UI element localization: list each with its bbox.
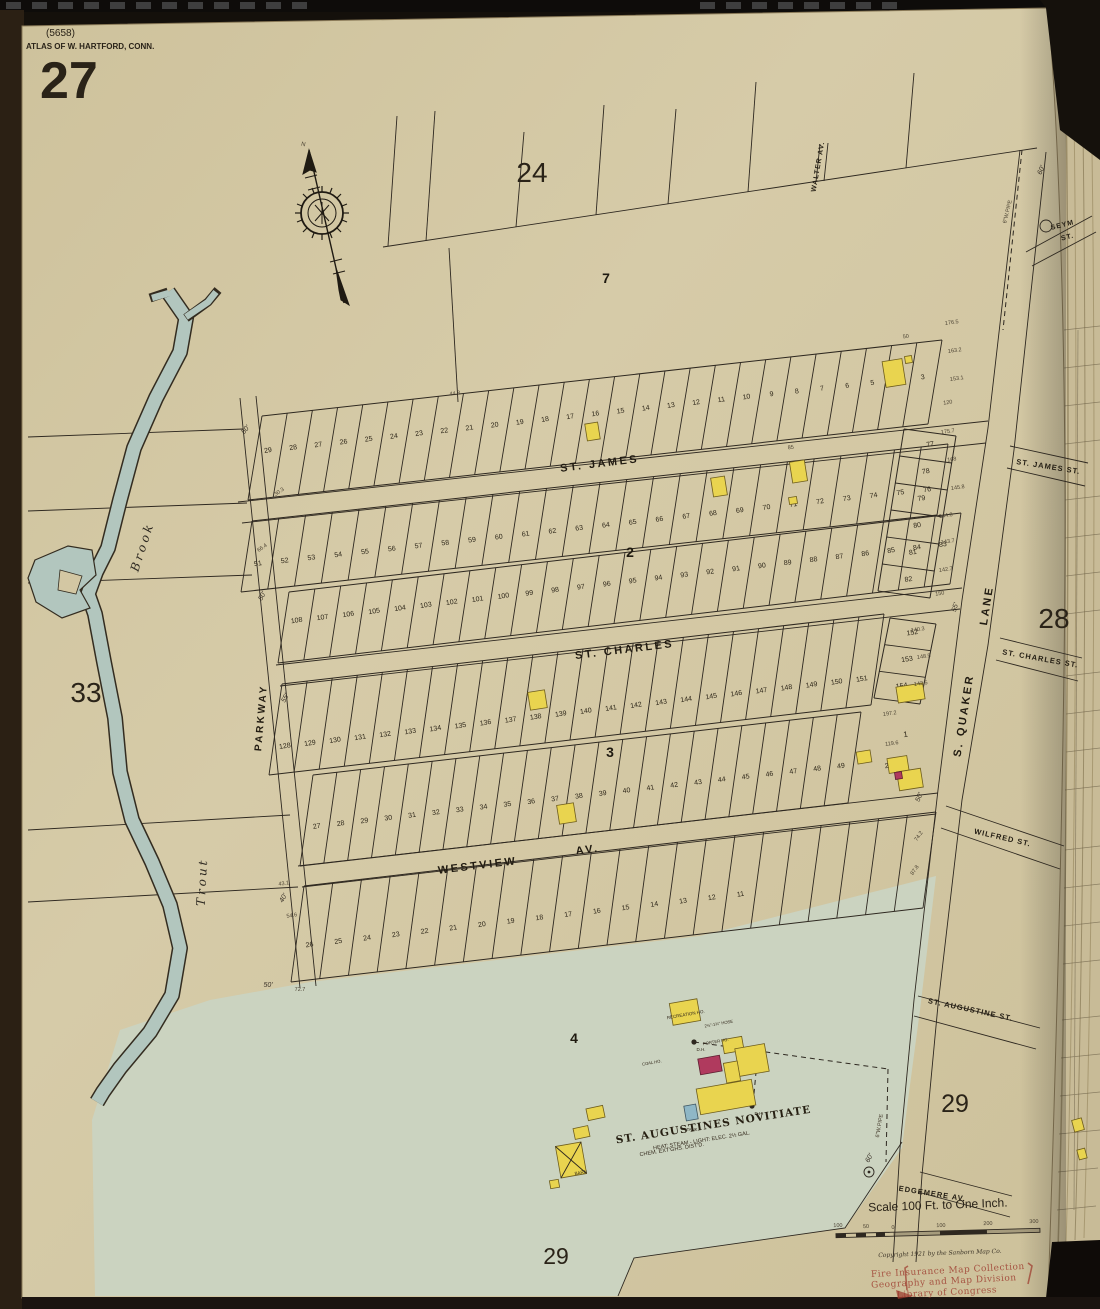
map-label: 7 — [602, 270, 610, 286]
lot-number: 25 — [334, 938, 343, 946]
frame-building — [789, 460, 807, 483]
building — [856, 750, 872, 764]
lot-number: 12 — [692, 399, 701, 407]
lot-number: 37 — [551, 795, 560, 803]
building — [528, 690, 548, 710]
lot-number: 39 — [598, 790, 607, 798]
lot-number: 16 — [591, 410, 600, 418]
lot-number: 92 — [706, 568, 715, 576]
lot-number: 79 — [917, 495, 926, 503]
building — [723, 1061, 740, 1083]
lot-number: 95 — [628, 577, 637, 585]
map-label: 150 — [935, 590, 945, 597]
lot-number: 96 — [602, 580, 611, 588]
lot-number: 77 — [926, 441, 935, 449]
lot-number: 64 — [602, 522, 611, 530]
lot-number: 68 — [709, 510, 718, 518]
lot-number: 31 — [408, 812, 417, 820]
lot-number: 20 — [478, 921, 487, 929]
lot-number: 24 — [363, 934, 372, 942]
lot-number: 55 — [361, 548, 370, 556]
map-label: 72.7 — [295, 987, 306, 993]
lot-number: 15 — [616, 407, 625, 415]
lot-number: 70 — [762, 504, 771, 512]
frame-building — [856, 750, 872, 764]
lot-number: 38 — [575, 793, 584, 801]
lot-number: 27 — [314, 441, 323, 449]
lot-number: 89 — [783, 559, 792, 567]
map-label: Trout — [194, 857, 211, 906]
frame-building — [789, 496, 798, 504]
building — [735, 1044, 769, 1077]
lot-number: 45 — [741, 773, 750, 781]
lot-number: 98 — [551, 586, 560, 594]
lot-number: 11 — [717, 396, 725, 404]
lot-number: 72 — [816, 498, 825, 506]
lot-number: 18 — [541, 416, 550, 424]
sanborn-map-sheet: 2928272625242322212019181716151413121110… — [0, 0, 1100, 1309]
lot-number: 14 — [641, 405, 650, 413]
lot-number: 24 — [390, 433, 399, 441]
map-label: 27 — [40, 52, 98, 110]
map-label: 0 — [891, 1225, 894, 1231]
lot-number: 20 — [490, 421, 499, 429]
lot-number: 63 — [575, 525, 584, 533]
building — [894, 771, 902, 779]
lot-number: 19 — [506, 918, 515, 926]
map-label: 50 — [863, 1224, 869, 1230]
lot-number: 32 — [432, 809, 441, 817]
map-label: 85 — [787, 445, 794, 452]
lot-number: 81 — [909, 549, 918, 557]
map-label: 24 — [516, 157, 547, 188]
lot-number: 41 — [646, 784, 655, 792]
lot-number: 69 — [735, 507, 744, 515]
frame-building — [723, 1061, 740, 1083]
map-label: 50' — [263, 982, 273, 989]
lot-number: 35 — [503, 801, 512, 809]
lot-number: 26 — [339, 438, 348, 446]
lot-number: 86 — [861, 550, 870, 558]
lot-number: 16 — [593, 908, 602, 916]
lot-number: 17 — [564, 911, 573, 919]
lot-number: 51 — [254, 560, 263, 568]
lot-number: 82 — [904, 576, 913, 584]
lot-number: 57 — [414, 542, 423, 550]
lot-number: 13 — [667, 402, 676, 410]
lot-number: 54 — [334, 551, 343, 559]
lot-number: 60 — [495, 533, 504, 541]
map-label: 100 — [833, 1223, 842, 1229]
lot-number: 88 — [809, 556, 818, 564]
lot-number: 15 — [621, 904, 630, 912]
lot-number: 13 — [679, 897, 688, 905]
map-label: 29 — [543, 1243, 569, 1269]
brick-building — [698, 1055, 722, 1075]
map-label: 4 — [570, 1030, 578, 1046]
lot-number: 97 — [577, 583, 586, 591]
frame-building — [528, 690, 548, 710]
building — [789, 460, 807, 483]
lot-number: 30 — [384, 814, 393, 822]
map-label: 300 — [1029, 1219, 1038, 1225]
lot-number: 27 — [312, 823, 321, 831]
map-label: (5658) — [46, 28, 75, 39]
lot-number: 10 — [742, 393, 751, 401]
frame-building — [549, 1179, 559, 1188]
building — [882, 359, 906, 388]
map-label: 3 — [606, 744, 614, 760]
lot-number: 23 — [415, 430, 424, 438]
lot-number: 93 — [680, 571, 689, 579]
map-label: 100 — [936, 1223, 945, 1229]
lot-number: 74 — [869, 492, 878, 500]
lot-number: 25 — [364, 436, 373, 444]
lot-number: 21 — [449, 924, 458, 932]
stone-building — [684, 1104, 698, 1121]
lot-number: 21 — [465, 424, 474, 432]
brick-building — [894, 771, 902, 779]
building — [789, 496, 798, 504]
lot-number: 61 — [521, 530, 530, 538]
lot-number: 87 — [835, 553, 844, 561]
lot-number: 28 — [289, 444, 298, 452]
frame-building — [585, 422, 600, 441]
lot-number: 49 — [837, 762, 846, 770]
lot-number: 53 — [307, 554, 316, 562]
building — [904, 355, 912, 363]
map-label: ATLAS OF W. HARTFORD, CONN. — [26, 42, 154, 51]
lot-number: 34 — [479, 803, 488, 811]
lot-number: 85 — [887, 547, 896, 555]
map-label: 120 — [943, 399, 953, 406]
lot-number: 44 — [718, 776, 727, 784]
frame-building — [557, 803, 577, 824]
lot-number: 33 — [455, 806, 464, 814]
lot-number: 90 — [758, 562, 767, 570]
book-spine-edge — [0, 10, 24, 1309]
frame-building — [735, 1044, 769, 1077]
lot-number: 14 — [650, 901, 659, 909]
map-label: 2 — [626, 544, 634, 560]
lot-number: 65 — [628, 519, 637, 527]
lot-number: 11 — [736, 891, 744, 899]
building — [549, 1179, 559, 1188]
map-label: 168 — [947, 456, 957, 463]
lot-number: 73 — [843, 495, 852, 503]
lot-number: 56 — [387, 545, 396, 553]
lot-number: 67 — [682, 513, 691, 521]
building — [585, 422, 600, 441]
map-label: D.H. — [697, 1047, 706, 1052]
map-label: 29 — [941, 1090, 969, 1118]
map-label: 50 — [902, 334, 909, 341]
lot-number: 36 — [527, 798, 536, 806]
lot-number: 59 — [468, 536, 477, 544]
lot-number: 17 — [566, 413, 575, 421]
lot-number: 26 — [305, 941, 314, 949]
lot-number: 19 — [516, 419, 525, 427]
map-label: 28 — [1038, 603, 1069, 634]
bottom-shadow-strip — [22, 1297, 1100, 1309]
building — [698, 1055, 722, 1075]
lot-number: 29 — [360, 817, 369, 825]
lot-number: 12 — [707, 894, 716, 902]
frame-building — [882, 359, 906, 388]
lot-number: 99 — [525, 590, 534, 598]
lot-number: 66 — [655, 516, 664, 524]
lot-number: 78 — [922, 468, 931, 476]
lot-number: 46 — [765, 771, 774, 779]
frame-building — [711, 476, 728, 497]
lot-number: 58 — [441, 539, 450, 547]
map-label: 200 — [983, 1221, 992, 1227]
lot-number: 91 — [732, 565, 741, 573]
lot-number: 29 — [264, 447, 273, 455]
lot-number: 42 — [670, 782, 679, 790]
lot-number: 40 — [622, 787, 631, 795]
building — [684, 1104, 698, 1121]
lot-number: 18 — [535, 914, 544, 922]
lot-number: 47 — [789, 768, 798, 776]
lot-number: 62 — [548, 528, 557, 536]
lot-number: 23 — [391, 931, 400, 939]
sanborn-atlas-page: 2928272625242322212019181716151413121110… — [0, 0, 1100, 1309]
frame-building — [904, 355, 912, 363]
lot-number: 80 — [913, 522, 922, 530]
lot-number: 22 — [440, 427, 449, 435]
lot-number: 22 — [420, 928, 429, 936]
lot-number: 28 — [336, 820, 345, 828]
map-label: 33 — [70, 677, 101, 708]
building — [557, 803, 577, 824]
lot-number: 94 — [654, 574, 663, 582]
lot-number: 43 — [694, 779, 703, 787]
lot-number: 48 — [813, 765, 822, 773]
hydrant-dot — [691, 1039, 696, 1044]
lot-number: 75 — [896, 489, 905, 497]
lot-number: 52 — [280, 557, 289, 565]
building — [711, 476, 728, 497]
